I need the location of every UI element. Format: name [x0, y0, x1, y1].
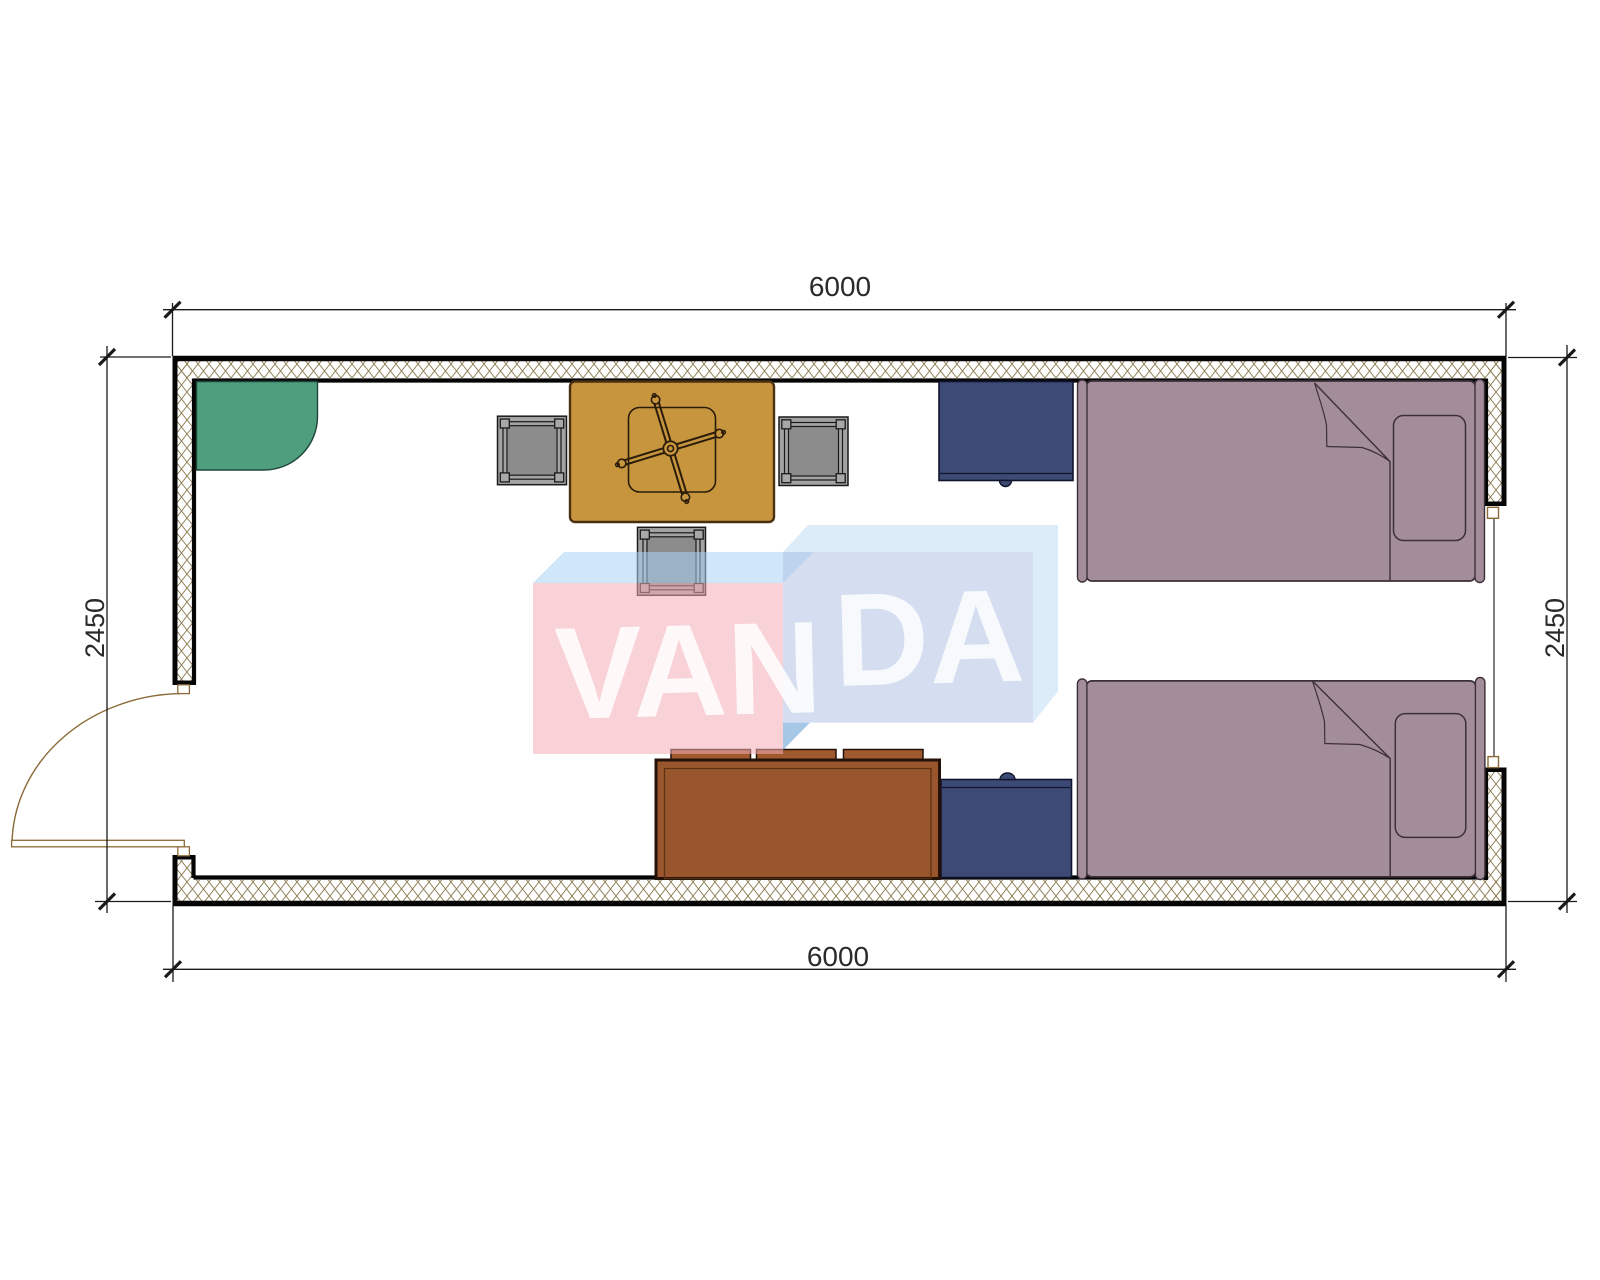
- svg-text:VAN: VAN: [553, 593, 824, 747]
- svg-text:6000: 6000: [807, 941, 869, 972]
- svg-text:6000: 6000: [809, 271, 871, 302]
- svg-text:2450: 2450: [80, 598, 110, 658]
- svg-text:DA: DA: [832, 562, 1027, 714]
- svg-text:2450: 2450: [1540, 598, 1570, 658]
